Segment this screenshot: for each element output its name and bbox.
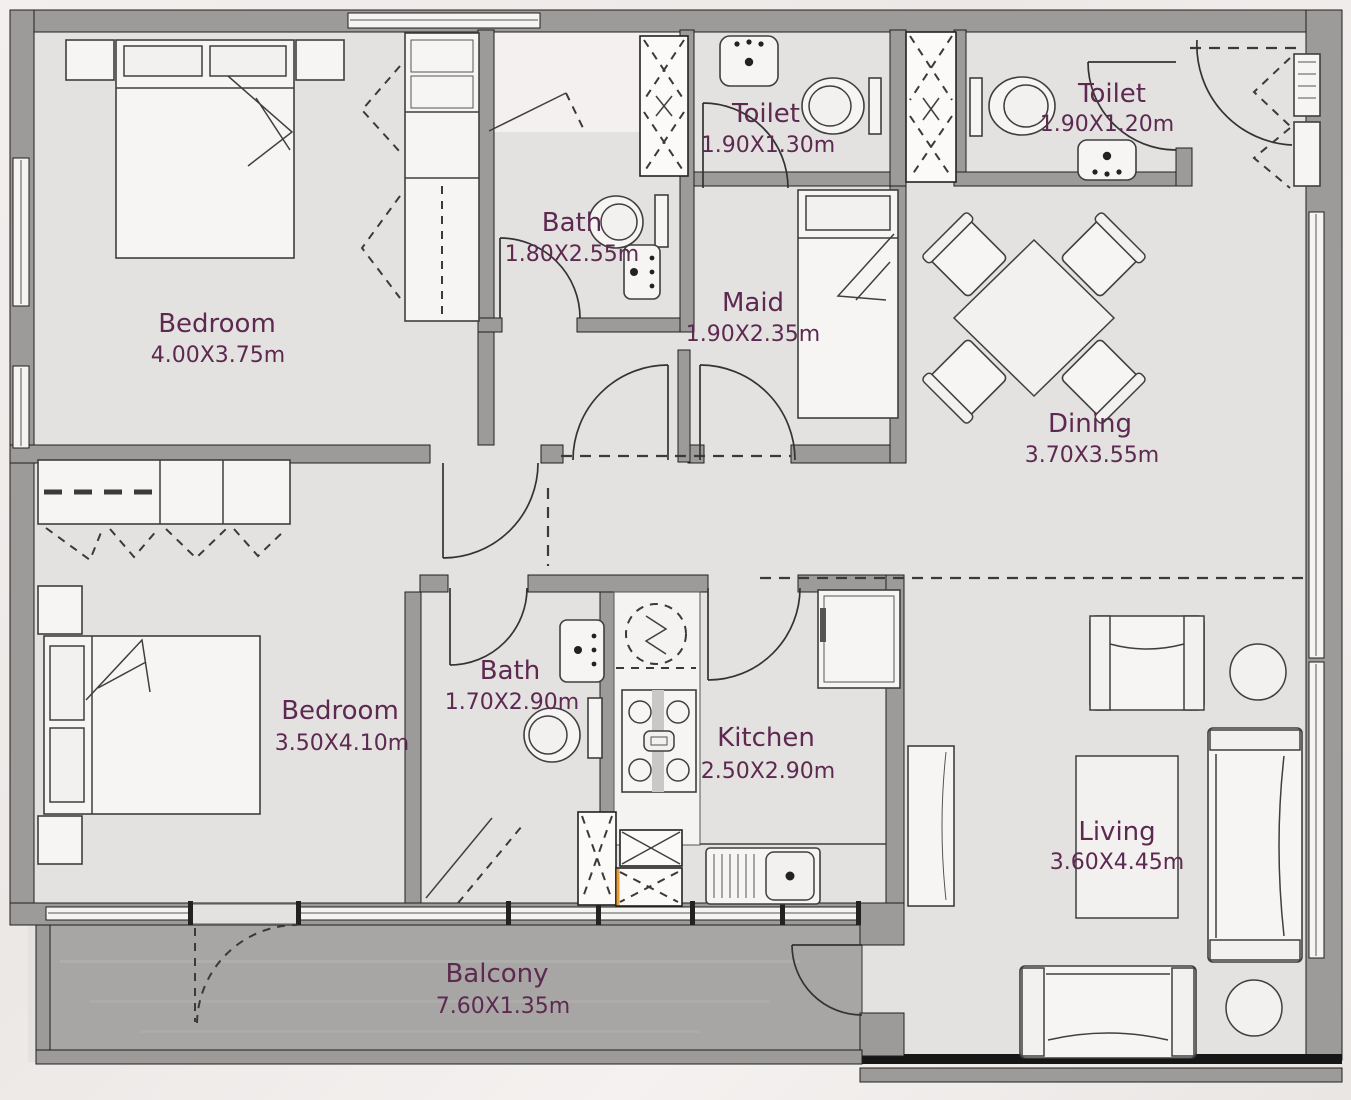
mirror (655, 195, 668, 247)
room-dims-toilet-2: 1.90X1.20m (1040, 112, 1174, 137)
wall-bath2-top-a (420, 575, 448, 592)
room-label-balcony: Balcony (445, 959, 548, 989)
wall-bath1-bottom-a (478, 318, 502, 332)
nightstand (38, 816, 82, 864)
nightstand (296, 40, 344, 80)
toilet-fixture (524, 708, 580, 762)
dining-set (921, 211, 1146, 424)
duct-shaft (640, 36, 688, 176)
wall-balcony-rail-bottom (36, 1050, 862, 1064)
bedroom2-furniture (38, 460, 290, 864)
duct-shaft (616, 868, 682, 906)
wall-top (10, 10, 1342, 32)
double-bed (44, 636, 260, 814)
wall-bottom-living-outer (860, 1068, 1342, 1082)
room-dims-bath-2: 1.70X2.90m (445, 690, 579, 715)
fridge (818, 590, 900, 688)
room-dims-kitchen: 2.50X2.90m (701, 759, 835, 784)
washbasin (1078, 140, 1136, 180)
room-label-dining: Dining (1048, 409, 1132, 439)
room-label-toilet-2: Toilet (1077, 79, 1146, 109)
double-bed (116, 40, 294, 258)
room-label-bedroom-1: Bedroom (158, 309, 276, 339)
room-label-kitchen: Kitchen (717, 723, 815, 753)
floor-plan: Bedroom 4.00X3.75m Bath 1.80X2.55m Toile… (0, 0, 1351, 1100)
duct-shaft (620, 830, 682, 866)
room-label-bath-1: Bath (542, 208, 602, 238)
room-dims-bath-1: 1.80X2.55m (505, 242, 639, 267)
toilet-fixture (802, 78, 864, 134)
room-dims-maid: 1.90X2.35m (686, 322, 820, 347)
room-label-living: Living (1078, 817, 1155, 847)
room-dims-living: 3.60X4.45m (1050, 850, 1184, 875)
stove (622, 690, 696, 792)
wall-balcony-stub-top (860, 903, 904, 945)
tv-unit (908, 746, 954, 906)
wall-balcony-stub-bottom (860, 1013, 904, 1056)
room-dims-bedroom-1: 4.00X3.75m (151, 343, 285, 368)
washbasin (560, 620, 604, 682)
wall-kitchen-top-a (528, 575, 708, 592)
mirror (970, 78, 982, 136)
armchair (1090, 616, 1204, 710)
duct-shaft (578, 812, 616, 905)
room-label-bath-2: Bath (480, 656, 540, 686)
mirror (869, 78, 881, 134)
sofa-bottom (1020, 966, 1196, 1058)
room-label-maid: Maid (722, 288, 784, 318)
sofa-right (1208, 728, 1302, 962)
wall-closet-right (478, 30, 494, 445)
room-dims-toilet-1: 1.90X1.30m (701, 133, 835, 158)
wall-maid-bottom-right (791, 445, 890, 463)
duct-shaft (906, 32, 956, 182)
maid-furniture (798, 190, 898, 418)
room-label-toilet-1: Toilet (731, 99, 800, 129)
wall-shaft2-left (890, 30, 906, 186)
single-bed (798, 190, 898, 418)
room-dims-bedroom-2: 3.50X4.10m (275, 731, 409, 756)
room-dims-dining: 3.70X3.55m (1025, 443, 1159, 468)
wall-toilet1-maid (694, 172, 890, 186)
wall-corridor-stub (678, 350, 690, 462)
wall-post (541, 445, 563, 463)
balcony-door-opening (192, 905, 298, 923)
wall-toilet2-bottom (954, 172, 1192, 186)
washbasin (720, 36, 778, 86)
room-dims-balcony: 7.60X1.35m (436, 994, 570, 1019)
wall-balcony-rail-left (36, 925, 50, 1052)
nightstand (66, 40, 114, 80)
room-label-bedroom-2: Bedroom (281, 696, 399, 726)
mirror (588, 698, 602, 758)
wall-toilet2-stub (1176, 148, 1192, 186)
floor-plan-canvas: Bedroom 4.00X3.75m Bath 1.80X2.55m Toile… (0, 0, 1351, 1100)
side-table (1230, 644, 1286, 700)
wall-bath1-bottom-b (577, 318, 692, 332)
nightstand (38, 586, 82, 634)
side-table (1226, 980, 1282, 1036)
